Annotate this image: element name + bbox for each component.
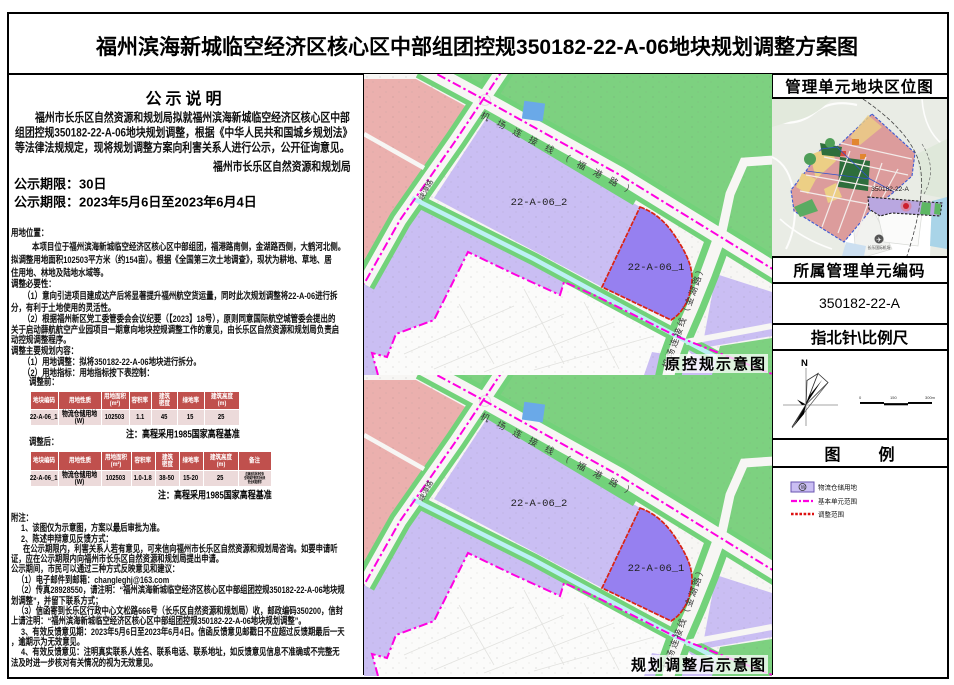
svg-text:调整范围: 调整范围: [818, 510, 844, 519]
svg-text:✈: ✈: [876, 237, 882, 244]
svg-text:原控规示意图: 原控规示意图: [665, 355, 767, 373]
svg-text:基本单元范围: 基本单元范围: [818, 497, 857, 506]
svg-text:300m: 300m: [925, 395, 936, 400]
svg-text:0: 0: [859, 395, 862, 400]
svg-text:350182-22-A: 350182-22-A: [871, 186, 909, 193]
svg-text:N: N: [801, 358, 808, 369]
svg-text:150: 150: [890, 395, 897, 400]
svg-text:W: W: [801, 485, 806, 491]
svg-text:物流仓储用地: 物流仓储用地: [818, 483, 858, 492]
svg-text:长乐国际机场: 长乐国际机场: [868, 245, 891, 250]
svg-text:规划调整后示意图: 规划调整后示意图: [631, 656, 767, 674]
